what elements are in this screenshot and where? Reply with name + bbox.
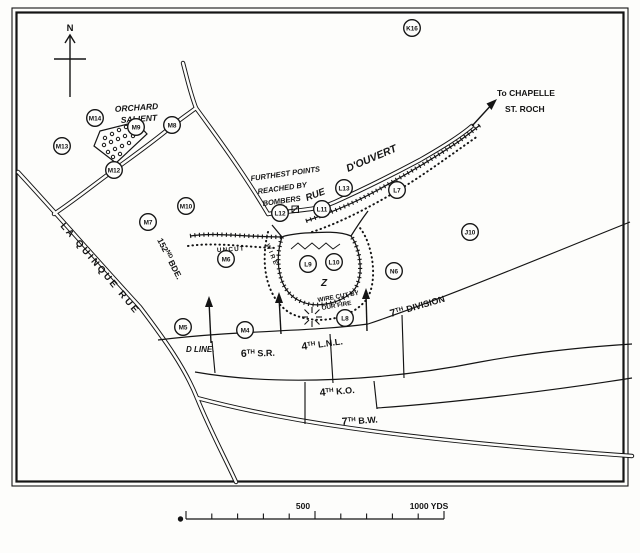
point-marker-L8: L8 bbox=[337, 310, 354, 327]
svg-text:N6: N6 bbox=[390, 268, 399, 275]
lnl-label: 4THL.N.L. bbox=[301, 335, 344, 353]
scale-origin-dot bbox=[178, 516, 183, 521]
point-marker-K16: K16 bbox=[404, 20, 421, 37]
point-marker-M13: M13 bbox=[54, 138, 71, 155]
connector-trench-3 bbox=[402, 315, 404, 378]
map-frame-outer bbox=[12, 8, 628, 486]
svg-text:M4: M4 bbox=[241, 327, 250, 334]
division-label: 7THDIVISION bbox=[389, 293, 447, 320]
point-marker-L9: L9 bbox=[300, 256, 317, 273]
svg-text:L8: L8 bbox=[341, 315, 349, 322]
festubert-sketch-map: N ORCHARD SALIENT FURTHEST POINTS REACHE… bbox=[0, 0, 640, 553]
la-quinque-rue-label: LA QUINQUE RUE bbox=[58, 221, 142, 317]
svg-text:M12: M12 bbox=[108, 167, 121, 174]
svg-text:L13: L13 bbox=[338, 185, 349, 192]
chapelle-label-1: To CHAPELLE bbox=[497, 88, 555, 98]
point-marker-J10: J10 bbox=[462, 224, 479, 241]
sr-label: 6THS.R. bbox=[241, 347, 275, 360]
bw-label: 7THB.W. bbox=[341, 414, 378, 428]
point-marker-L7: L7 bbox=[389, 182, 406, 199]
furthest-points-label-1: FURTHEST POINTS bbox=[250, 164, 320, 183]
svg-text:M13: M13 bbox=[56, 143, 69, 150]
point-marker-M8: M8 bbox=[164, 117, 181, 134]
point-marker-L11: L11 bbox=[314, 201, 331, 218]
svg-text:M6: M6 bbox=[222, 256, 231, 263]
svg-text:L9: L9 bbox=[304, 261, 312, 268]
rear-line bbox=[377, 378, 632, 408]
svg-text:M10: M10 bbox=[180, 203, 193, 210]
point-marker-M9: M9 bbox=[128, 119, 145, 136]
point-marker-L10: L10 bbox=[326, 254, 343, 271]
bde-label: 152NDBDE. bbox=[155, 236, 184, 280]
d-line-label: D LINE. bbox=[186, 345, 214, 354]
point-marker-M10: M10 bbox=[178, 198, 195, 215]
scale-500-label: 500 bbox=[296, 501, 310, 511]
svg-text:M9: M9 bbox=[132, 124, 141, 131]
scale-ticks bbox=[186, 511, 444, 519]
svg-text:L11: L11 bbox=[317, 206, 328, 213]
svg-text:M5: M5 bbox=[179, 324, 188, 331]
point-marker-M7: M7 bbox=[140, 214, 157, 231]
german-trenches bbox=[188, 125, 480, 320]
point-marker-N6: N6 bbox=[386, 263, 403, 280]
svg-text:M8: M8 bbox=[168, 122, 177, 129]
svg-text:K16: K16 bbox=[406, 25, 418, 32]
point-marker-M14: M14 bbox=[87, 110, 104, 127]
point-marker-M12: M12 bbox=[106, 162, 123, 179]
svg-text:M14: M14 bbox=[89, 115, 102, 122]
furthest-points-label-2: REACHED BY bbox=[257, 180, 308, 196]
wire-cut-burst-icon bbox=[302, 307, 322, 327]
svg-text:L7: L7 bbox=[393, 187, 401, 194]
scale-1000-label: 1000 YDS bbox=[410, 501, 449, 511]
map-page: N ORCHARD SALIENT FURTHEST POINTS REACHE… bbox=[0, 0, 640, 553]
svg-text:J10: J10 bbox=[465, 229, 476, 236]
map-frame-inner bbox=[17, 13, 624, 482]
inner-wire-zigzag bbox=[291, 243, 340, 249]
compass-n-label: N bbox=[67, 23, 74, 34]
scale-bar: 500 1000 YDS bbox=[178, 501, 449, 522]
ko-label: 4THK.O. bbox=[319, 384, 355, 399]
point-marker-M5: M5 bbox=[175, 319, 192, 336]
svg-text:L10: L10 bbox=[328, 259, 339, 266]
chapelle-label-2: ST. ROCH bbox=[505, 104, 545, 114]
svg-text:M7: M7 bbox=[144, 219, 153, 226]
z-point-label: Z bbox=[320, 278, 328, 289]
point-marker-L13: L13 bbox=[336, 180, 353, 197]
point-marker-M4: M4 bbox=[237, 322, 254, 339]
connector-trench-5 bbox=[374, 381, 377, 409]
svg-text:L12: L12 bbox=[274, 210, 285, 217]
point-marker-M6: M6 bbox=[218, 251, 235, 268]
point-marker-L12: L12 bbox=[272, 205, 289, 222]
douvert-label: D'OUVERT bbox=[344, 142, 400, 175]
compass: N bbox=[54, 23, 86, 97]
